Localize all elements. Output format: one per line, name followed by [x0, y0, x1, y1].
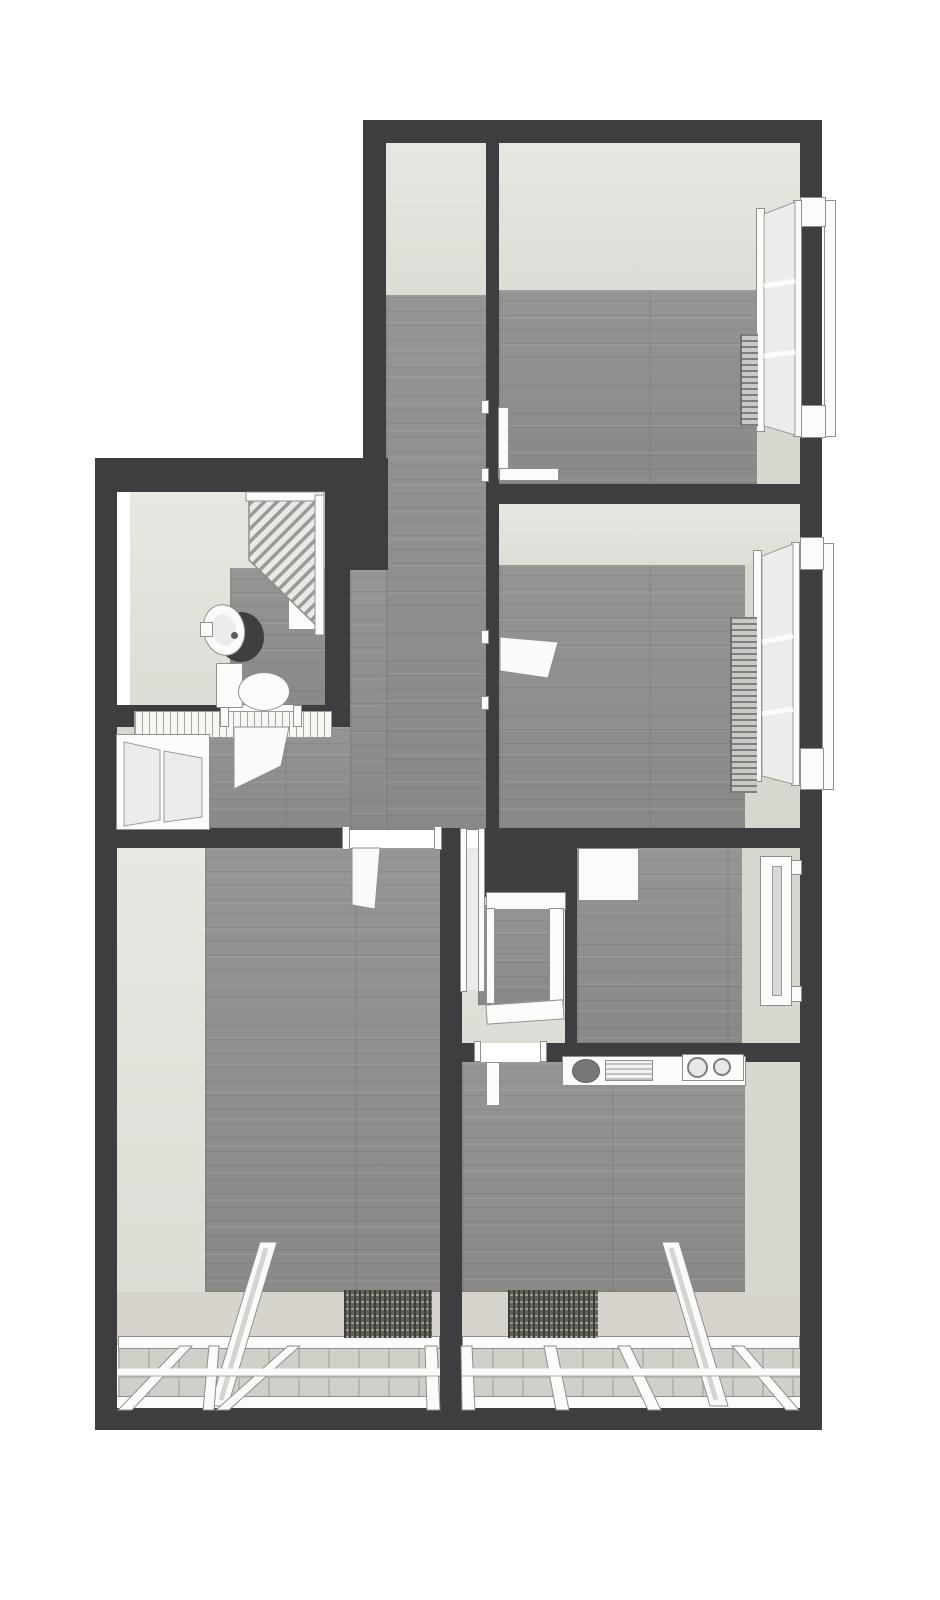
living-doorleaf: [352, 848, 380, 909]
bedroom-middle-doorleaf: [500, 637, 558, 678]
shower-glass: [246, 492, 324, 635]
bathroom-doorleaf: [234, 727, 289, 789]
bedroom-middle-window-glazing: [762, 544, 793, 784]
bedroom-top-window-glazing: [764, 202, 795, 435]
hallway-window-panes: [124, 742, 202, 826]
floorplan-canvas: [0, 0, 940, 1600]
perspective-overlay: [0, 0, 940, 1600]
kitchen-glass-railing: [662, 1242, 728, 1406]
living-glass-railing: [210, 1242, 277, 1406]
